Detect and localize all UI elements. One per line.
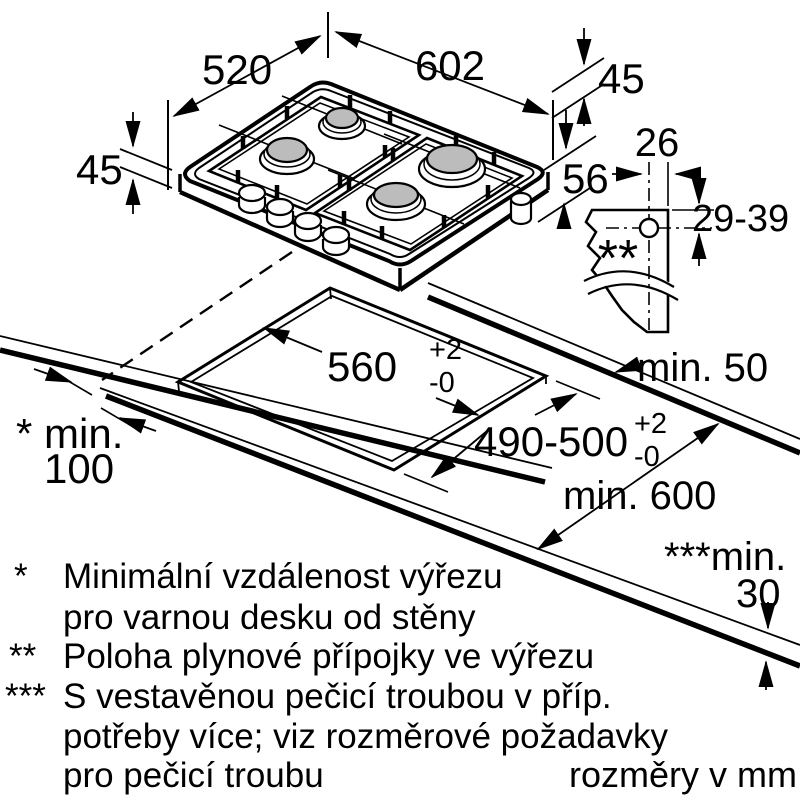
cutout-depth-tol-plus: +2 (634, 408, 667, 440)
units-note: rozměry v mm (569, 754, 797, 795)
label-min600: min. 600 (563, 474, 716, 518)
gas-stub (511, 193, 531, 224)
knob-2 (267, 199, 293, 227)
label-min50: min. 50 (637, 346, 768, 390)
burner-cap (267, 138, 307, 162)
dim-label-rim-right: 45 (598, 55, 645, 102)
burner-cap (326, 108, 358, 128)
dim-label-depth: 520 (202, 46, 272, 93)
burner-cap (374, 183, 418, 207)
cutout-width-tol-minus: -0 (429, 367, 455, 399)
footnote-3-marker: *** (5, 677, 46, 716)
dim-label-cutout-depth: 490-500 (474, 418, 628, 465)
footnote-1-marker: * (14, 557, 28, 596)
footnote-3-line-3: pro pečicí troubu (63, 756, 324, 795)
gas-detail-marker: ** (598, 230, 638, 288)
knob-4 (323, 227, 349, 255)
footnote-3-line-2: potřeby více; viz rozměrové požadavky (63, 717, 668, 756)
footnote-2-line-1: Poloha plynové přípojky ve výřezu (63, 637, 594, 676)
dim-label-gas-offset: 26 (635, 121, 680, 165)
footnote-2-marker: ** (9, 637, 37, 676)
knob-3 (295, 213, 321, 241)
gas-connection-point (640, 219, 658, 237)
footnote-3-line-1: S vestavěnou pečicí troubou v příp. (63, 677, 612, 716)
footnote-1-line-2: pro varnou desku od stěny (63, 598, 476, 637)
diagram-canvas: 520 602 45 56 45 26 29-39 ** (0, 0, 800, 800)
label-min100-value: 100 (44, 445, 114, 492)
dim-label-rim-left: 45 (76, 146, 123, 193)
cutout-width-tol-plus: +2 (429, 334, 462, 366)
label-min30-value: 30 (736, 572, 781, 616)
cutout-corner-tick-w (178, 382, 179, 391)
dim-label-cutout-width: 560 (327, 343, 397, 390)
cutout-corner-tick-n (330, 288, 331, 299)
knob-1 (239, 185, 265, 213)
dim-label-gas-height: 29-39 (692, 198, 789, 240)
installation-diagram: 520 602 45 56 45 26 29-39 ** (0, 0, 800, 800)
dim-label-body: 56 (562, 155, 609, 202)
footnote-1-line-1: Minimální vzdálenost výřezu (63, 557, 503, 596)
burner-cap (427, 145, 477, 173)
dim-label-width: 602 (415, 42, 485, 89)
